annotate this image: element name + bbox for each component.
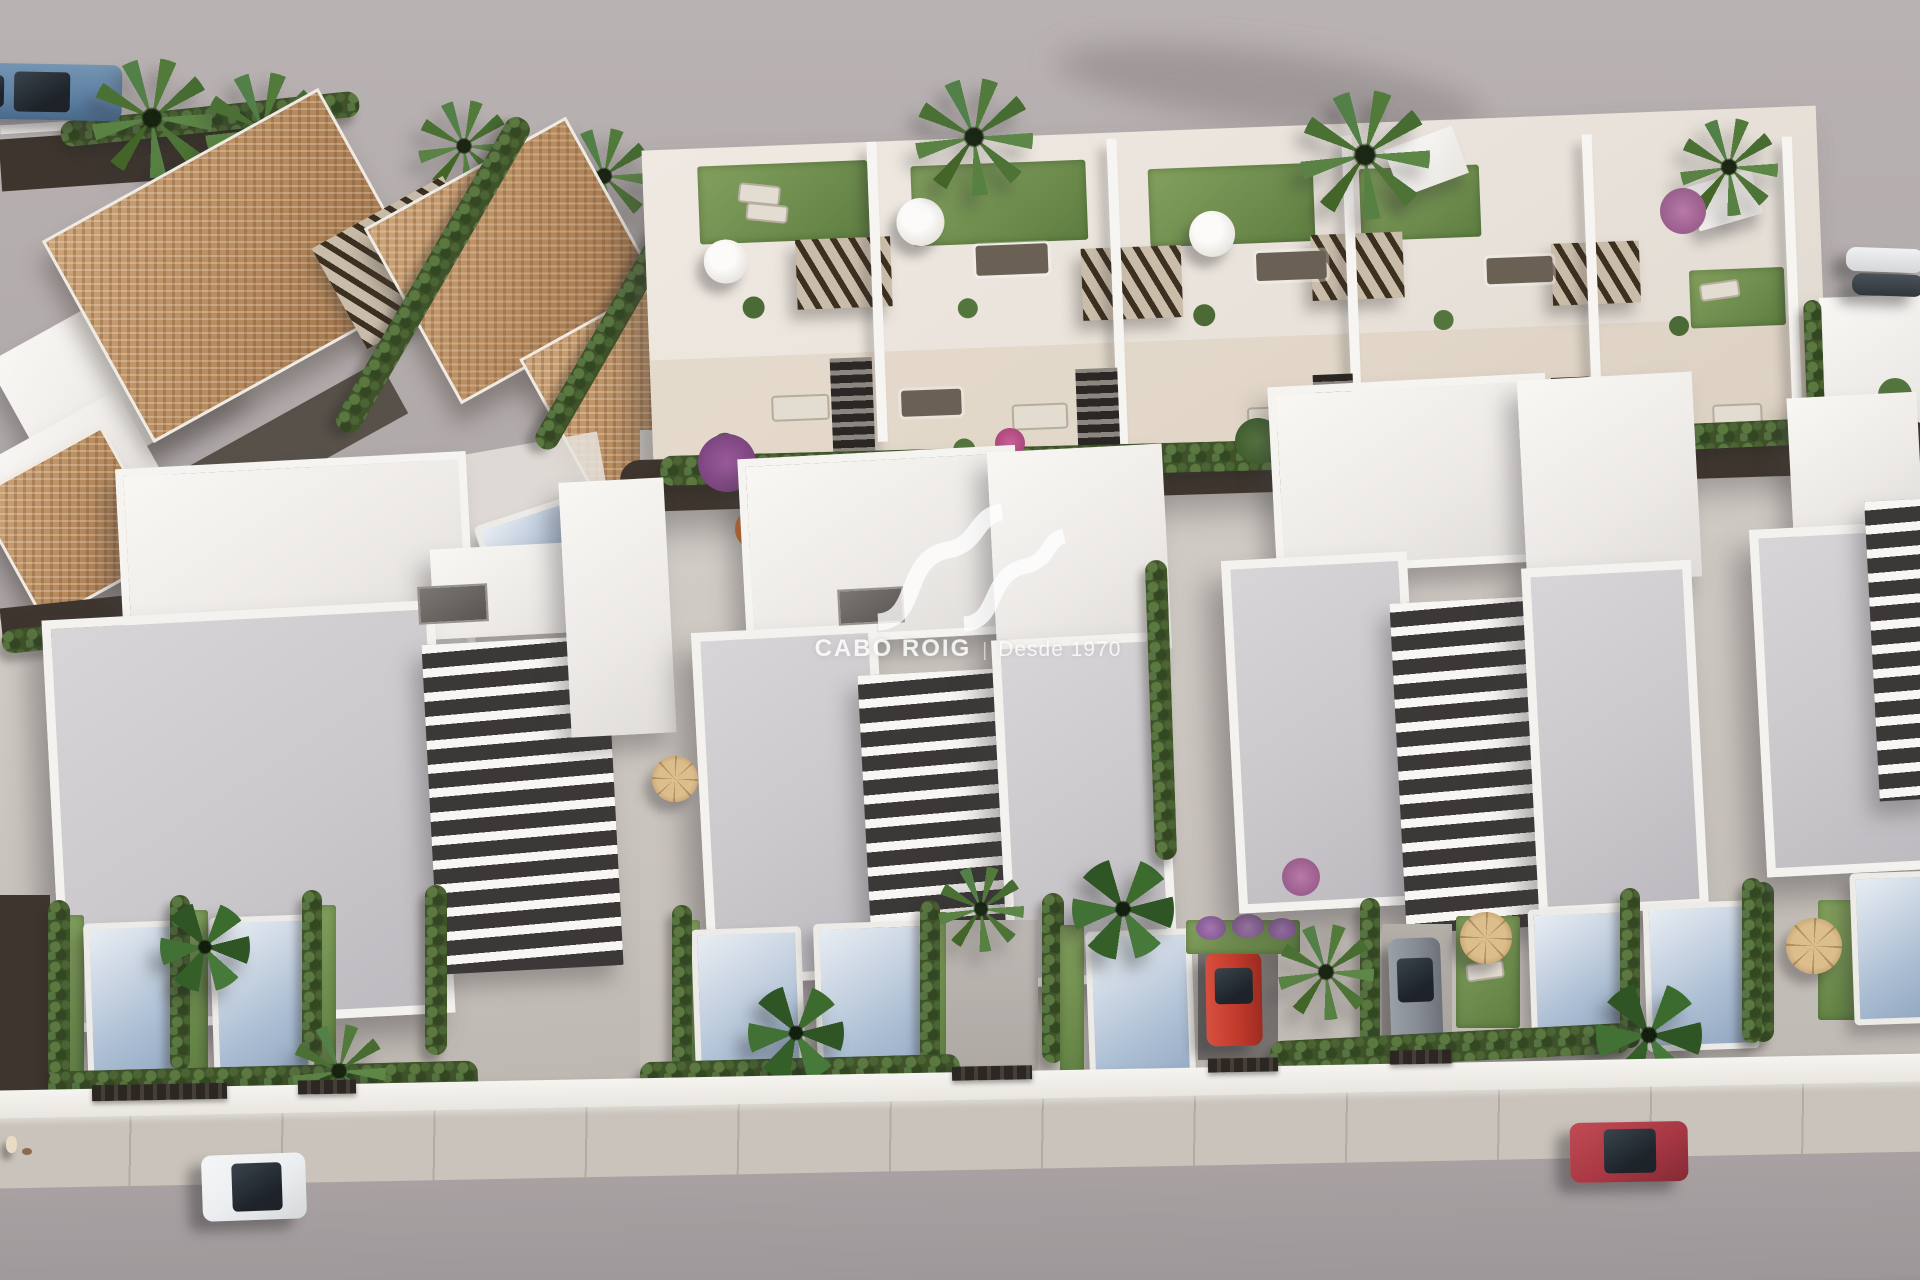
potted-plant [957,298,978,319]
pergola [1081,245,1184,321]
driveway-gate [1390,1049,1452,1064]
lavender-flowers [1196,916,1226,940]
pergola-slats [1389,597,1541,934]
boundary-hedge [48,900,70,1080]
dining-table [901,389,962,417]
dining-table [975,243,1048,276]
lavender-flowers [1232,914,1264,938]
red-car-carport [1205,952,1263,1047]
boundary-hedge [1742,878,1762,1043]
car-rear-window [0,75,4,107]
car-windshield [1397,957,1435,1002]
outdoor-sofa [771,394,830,422]
private-pool [1849,871,1920,1026]
parked-car-top-right [1846,247,1920,274]
bougainvillea [1282,858,1320,896]
straw-parasol [652,756,698,802]
dog [22,1148,32,1155]
white-parasol [703,239,749,285]
driveway-gate [298,1079,356,1094]
straw-parasol [1460,912,1512,964]
villa-upper-structure [1517,372,1702,586]
villa-upper-structure [1267,373,1554,575]
boundary-hedge [672,905,692,1080]
car-roof-glass [231,1162,283,1212]
car-windshield [14,71,71,112]
stairwell [830,357,876,454]
boundary-hedge [920,900,940,1070]
white-parasol [1188,210,1236,258]
rooftop-lawn [697,160,870,244]
watermark-text: CABO ROIG | Desde 1970 [815,635,1122,663]
brand-separator: | [982,640,987,662]
dining-table [1256,250,1327,281]
dining-table [1486,256,1553,285]
brand-name: CABO ROIG [815,635,972,663]
potted-plant [1433,310,1454,331]
outdoor-sofa [1012,403,1069,431]
banana-plant [1072,858,1174,960]
brand-tagline: Desde 1970 [998,638,1121,662]
driveway-gate [92,1083,227,1102]
dark-red-car-street [1569,1121,1688,1183]
driveway-gate [952,1065,1032,1081]
potted-plant [742,296,765,319]
banana-plant [748,985,844,1081]
lawn-strip [1060,925,1084,1090]
aerial-render-canvas: CABO ROIG | Desde 1970 [0,0,1920,1280]
boundary-hedge [425,885,447,1055]
side-garden [0,895,50,1110]
pedestrian-on-sidewalk [6,1136,17,1153]
roof-vent [417,583,489,625]
villa-flat-roof [1521,560,1709,916]
car-roof-glass [1604,1129,1657,1174]
watermark: CABO ROIG | Desde 1970 [828,500,1108,663]
driveway-gate [1208,1057,1278,1072]
parked-car-top-right [1852,273,1920,297]
brand-logo-wave-monogram [868,500,1068,635]
palm-tree [1300,90,1430,220]
potted-plant [1193,304,1216,327]
banana-plant [160,902,250,992]
white-car-street [201,1152,307,1222]
villa-side-structure [558,477,676,737]
palm-tree [1278,924,1374,1020]
car-windshield [1214,968,1253,1005]
bougainvillea [1660,188,1706,234]
palm-tree [915,78,1033,196]
straw-parasol [1786,918,1842,974]
palm-tree [938,866,1024,952]
